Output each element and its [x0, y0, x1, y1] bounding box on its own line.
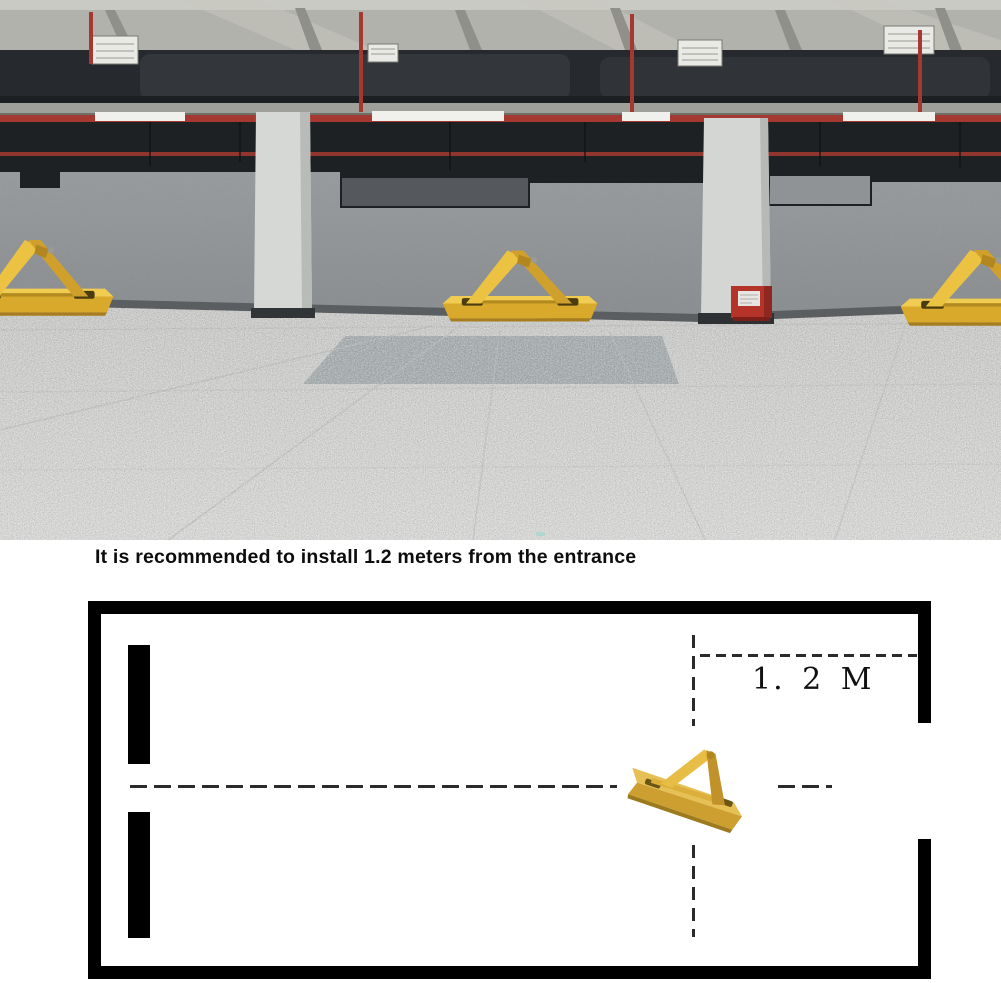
- product-listing-image: It is recommended to install 1.2 meters …: [0, 0, 1001, 983]
- bay-wall-left: [88, 601, 101, 979]
- fluorescent-light: [622, 112, 670, 121]
- distance-dashed-line: [700, 654, 917, 657]
- concrete-column-left: [251, 112, 315, 318]
- ceiling-slab: [0, 0, 1001, 52]
- wall-pillar-bottom: [128, 812, 150, 938]
- bay-wall-top: [88, 601, 931, 614]
- ceiling-ducts-upper: [0, 50, 1001, 105]
- red-fire-box: [731, 286, 772, 321]
- terrazzo-floor: [0, 300, 1001, 540]
- stray-watermark-dot: [536, 532, 545, 536]
- bay-wall-right-below-entrance: [918, 839, 931, 979]
- parking-lock-product-photo: [617, 726, 773, 838]
- distance-label: 1. 2 M: [752, 662, 874, 697]
- caption-text: It is recommended to install 1.2 meters …: [95, 546, 955, 569]
- bay-wall-bottom: [88, 966, 931, 979]
- bay-wall-right-above-entrance: [918, 601, 931, 723]
- fluorescent-light: [843, 112, 935, 121]
- garage-photo-art: [0, 0, 1001, 540]
- fluorescent-light: [95, 112, 185, 121]
- fluorescent-light: [372, 111, 504, 121]
- garage-photo: [0, 0, 1001, 540]
- wall-pillar-top: [128, 645, 150, 764]
